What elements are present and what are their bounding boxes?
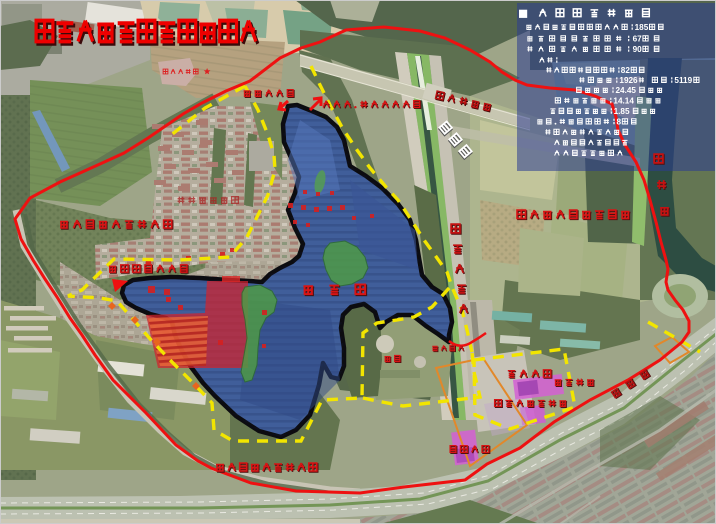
svg-text:1926: 1926 — [619, 76, 638, 85]
svg-text:67: 67 — [633, 34, 643, 43]
svg-text:24.45: 24.45 — [616, 86, 637, 95]
svg-text:14.14: 14.14 — [613, 96, 634, 105]
svg-text:1.85: 1.85 — [614, 107, 630, 116]
svg-text:90: 90 — [633, 45, 643, 54]
svg-text:5119: 5119 — [674, 76, 692, 85]
svg-text:82: 82 — [621, 66, 631, 75]
svg-text:8: 8 — [617, 117, 622, 126]
svg-text:185: 185 — [635, 23, 649, 32]
